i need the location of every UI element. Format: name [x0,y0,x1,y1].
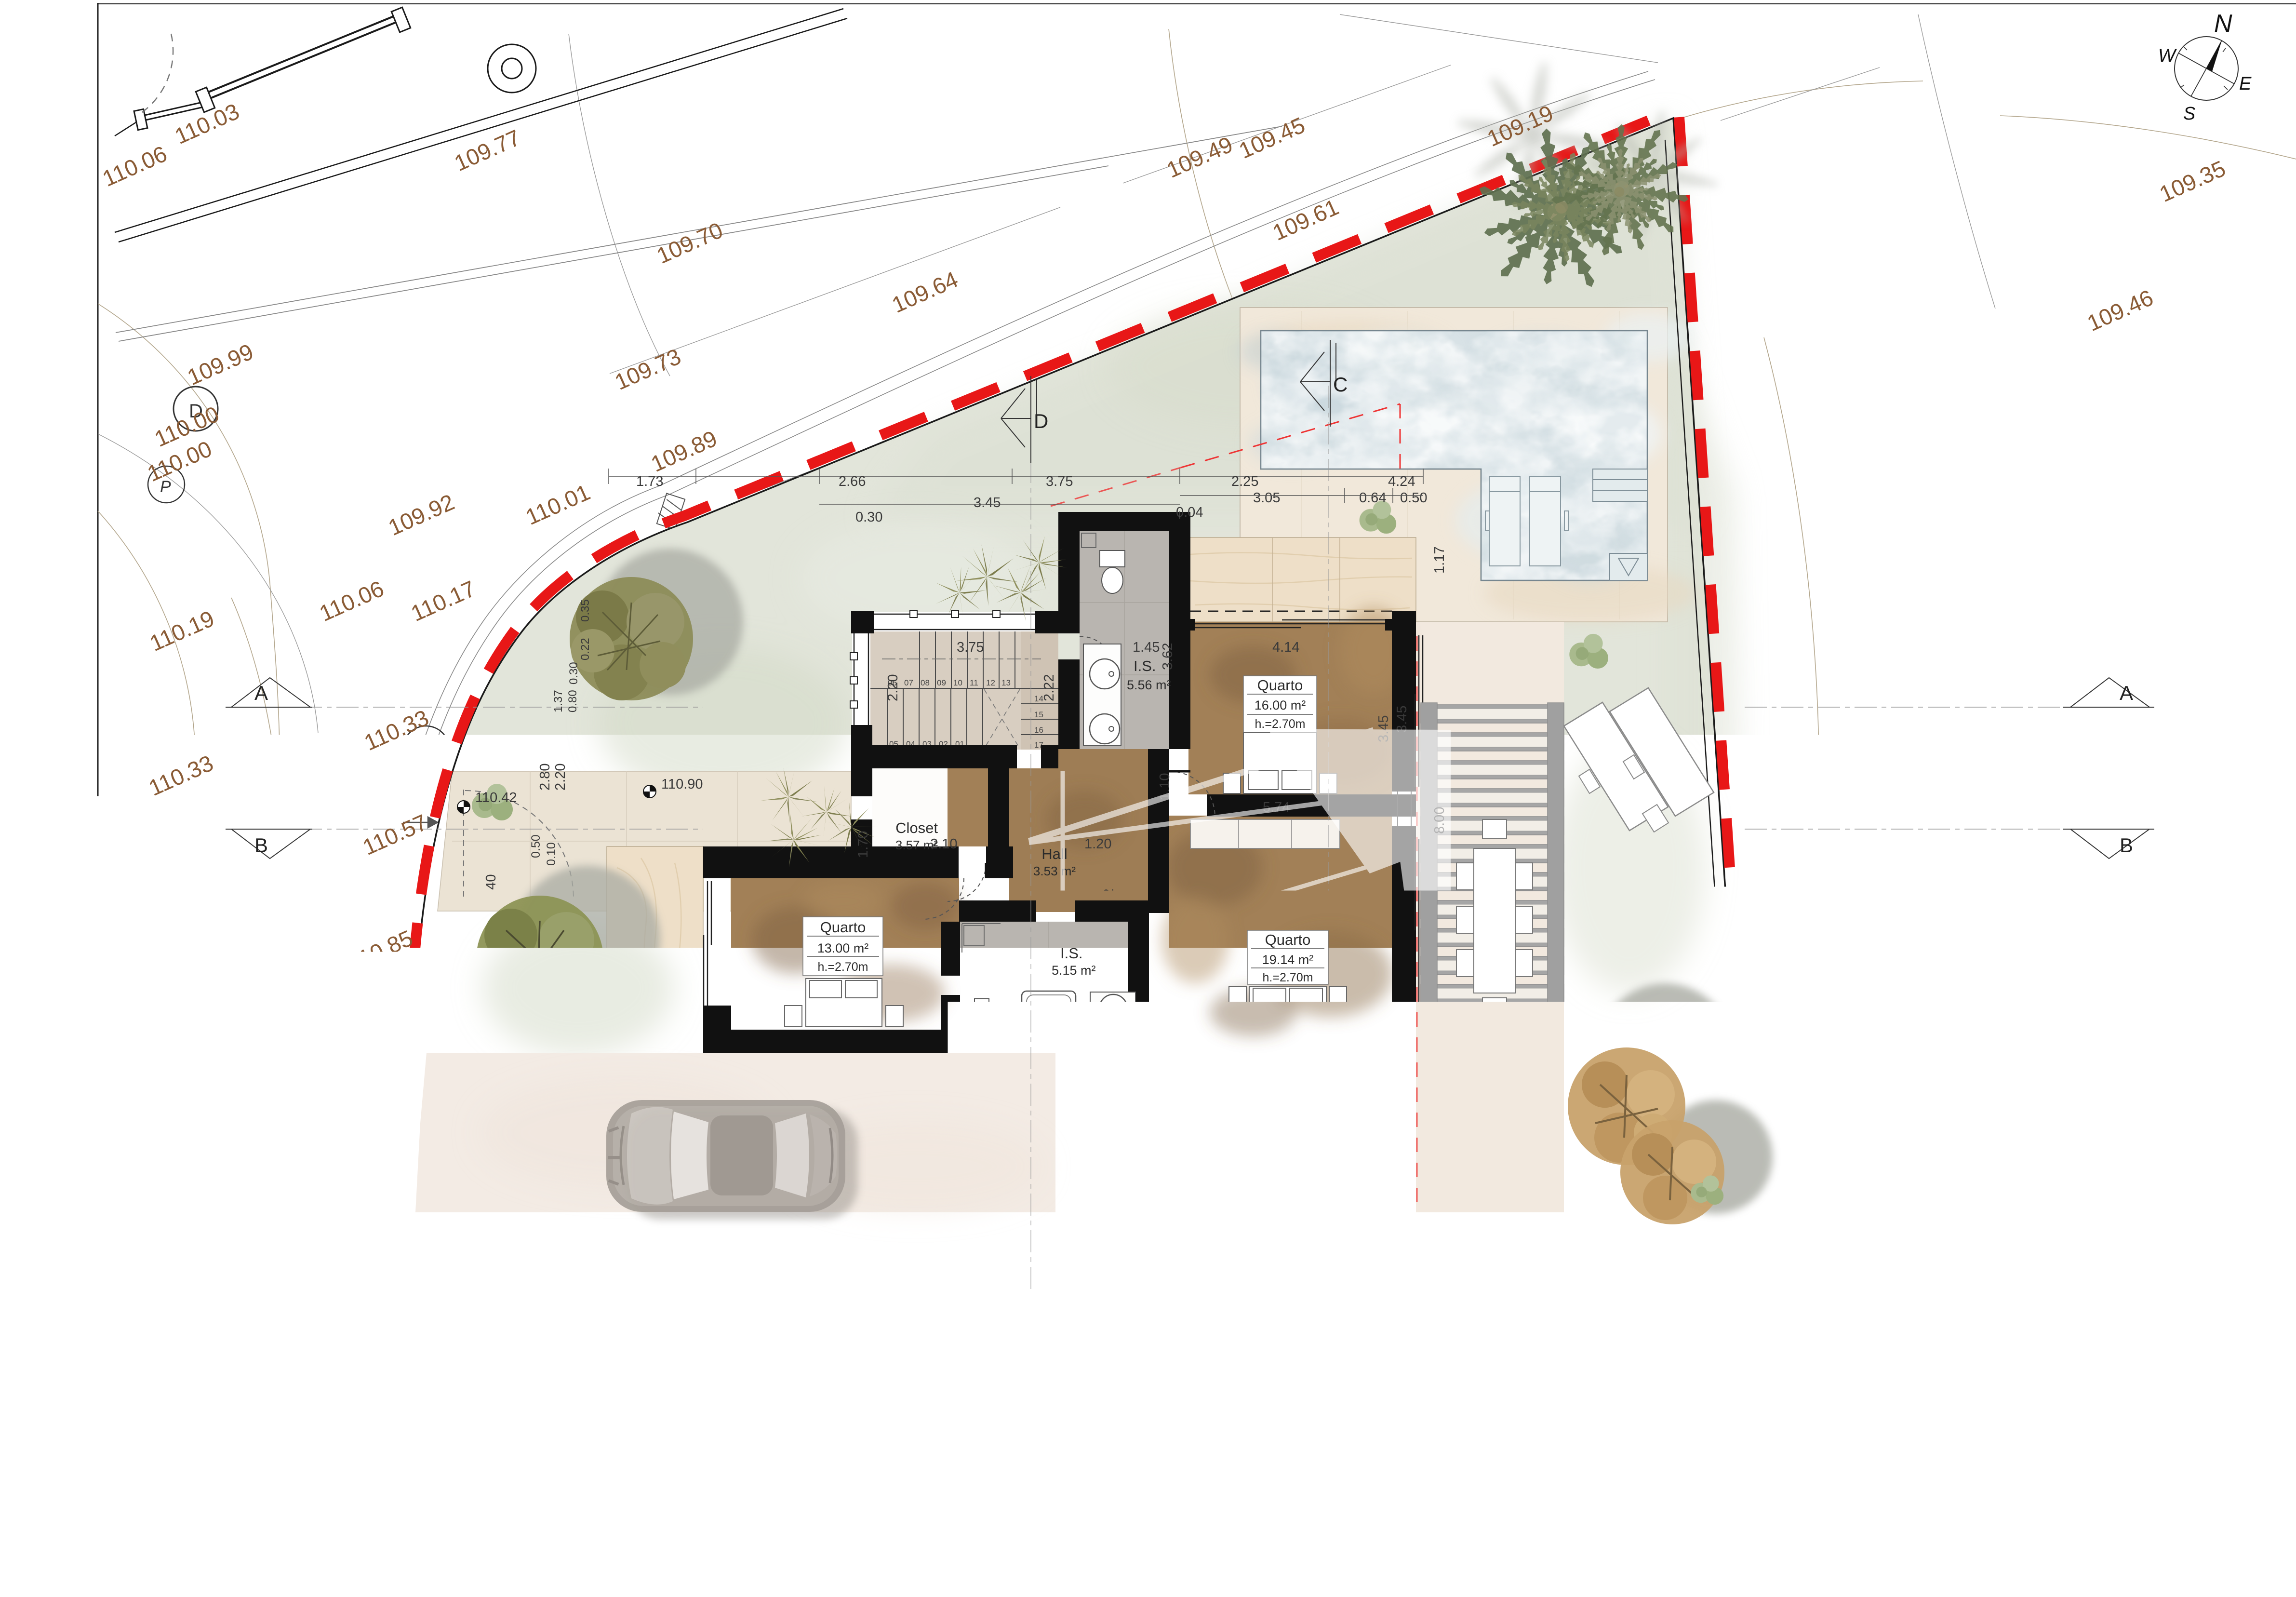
svg-text:113.92: 113.92 [1239,999,1281,1015]
svg-text:N.º de Pisos: N.º de Pisos [1097,1424,1187,1443]
svg-text:1.73: 1.73 [636,474,663,489]
svg-text:Closet: Closet [895,819,938,836]
svg-text:S: S [2183,104,2195,124]
svg-text:Volume de Construção: Volume de Construção [725,1525,862,1540]
svg-text:02: 02 [178,1444,188,1454]
svg-text:PLANTA: PLANTA [1589,1488,1721,1526]
svg-text:(máx. 280.00 m²): (máx. 280.00 m²) [994,1404,1067,1415]
svg-text:3.00: 3.00 [962,942,978,969]
svg-text:Piscina: Piscina [202,1459,246,1474]
svg-text:A: A [2120,682,2133,704]
svg-text:2.92: 2.92 [1101,889,1117,916]
svg-text:Quarto: Quarto [1265,931,1311,948]
svg-text:209.32 m²: 209.32 m² [463,1568,523,1583]
svg-text:C: C [1332,1293,1346,1315]
svg-text:ESCALA: ESCALA [2080,1431,2118,1442]
svg-text:4.24: 4.24 [1388,474,1415,489]
svg-text:0.50: 0.50 [1400,490,1427,506]
svg-text:versão: versão [2207,1557,2236,1567]
svg-text:(máx. 280.00 m²): (máx. 280.00 m²) [433,1372,506,1382]
svg-text:03: 03 [178,1463,188,1474]
svg-text:109.46: 109.46 [2083,284,2157,336]
svg-text:3.45: 3.45 [1394,706,1410,733]
svg-text:REQUERENTE: REQUERENTE [1589,1385,1655,1396]
svg-text:213.19: 213.19 [1145,1365,1187,1380]
svg-text:Deck Cerâmico sobre betonilha: Deck Cerâmico sobre betonilha [202,1478,391,1493]
svg-text:5.54: 5.54 [819,1074,846,1089]
svg-text:109.92: 109.92 [385,489,458,540]
svg-text:A: A [254,682,268,704]
svg-text:Área de Implantação: Área de Implantação [725,1347,850,1362]
svg-text:1.93: 1.93 [1108,1074,1135,1089]
svg-text:PROCESSO: PROCESSO [2080,1339,2134,1350]
svg-text:110.01: 110.01 [522,479,594,530]
svg-text:16.00 m²: 16.00 m² [1255,698,1306,712]
svg-text:639.57 m³: 639.57 m³ [1126,1525,1187,1540]
svg-text:12: 12 [986,678,995,687]
svg-text:(Extensão): (Extensão) [790,1546,837,1557]
svg-text:Lote 11: Lote 11 [1738,1440,1795,1460]
svg-text:3.05: 3.05 [1253,490,1280,506]
svg-text:23.43: 23.43 [627,1460,661,1475]
svg-text:110.17: 110.17 [407,576,480,626]
svg-text:AV.448.2021: AV.448.2021 [2080,1352,2177,1372]
svg-text:15: 15 [1034,710,1043,719]
svg-text:Data: Data [2210,1337,2231,1347]
svg-text:4.14: 4.14 [1272,640,1299,655]
svg-text:Área do Lote: Área do Lote [725,1329,802,1344]
svg-text:ARQUITECTURA: ARQUITECTURA [1539,1362,1567,1564]
svg-text:Habitação - Piso 01: Habitação - Piso 01 [176,1349,294,1364]
svg-text:(máx. 280.00 m²): (máx. 280.00 m²) [433,1333,506,1344]
svg-text:2.66: 2.66 [839,474,866,489]
svg-text:13: 13 [1001,678,1011,687]
svg-text:permeab. - 100 %: permeab. - 100 % [533,1446,609,1456]
svg-text:02: 02 [1172,1480,1187,1495]
svg-text:3.75: 3.75 [1046,474,1073,489]
svg-text:5.56 m²: 5.56 m² [1127,678,1171,692]
svg-text:Número Total de Pisos: Número Total de Pisos [725,1480,861,1495]
svg-text:109.99: 109.99 [184,338,257,390]
svg-text:109.49: 109.49 [1163,131,1237,183]
svg-text:19.14 m²: 19.14 m² [1262,953,1314,967]
svg-text:3.00: 3.00 [1432,1120,1447,1147]
svg-text:formato: formato [2207,1455,2240,1466]
svg-text:3.75: 3.75 [957,640,984,655]
svg-text:91.37: 91.37 [627,1349,661,1364]
svg-text:arquitectura: arquitectura [2121,1394,2218,1414]
svg-text:Implantação garagem: Implantação garagem [176,1387,307,1402]
svg-text:1/100: 1/100 [2120,1429,2182,1457]
svg-text:0.10: 0.10 [545,991,558,1014]
svg-text:Troviscal: Troviscal [1606,1440,1675,1460]
svg-text:1.73: 1.73 [672,1074,699,1089]
svg-text:0.30: 0.30 [855,510,882,525]
svg-text:134.08 m²: 134.08 m² [463,1549,523,1564]
svg-text:(máx. 305.00 m²): (máx. 305.00 m²) [994,1369,1067,1379]
svg-text:Piso 1: Piso 1 [1611,1534,1670,1558]
svg-text:AUTORIA: AUTORIA [1589,1339,1631,1350]
svg-text:16: 16 [1034,725,1043,735]
svg-text:P. 02: P. 02 [2124,1490,2236,1546]
svg-text:73.82 m: 73.82 m [1138,1542,1187,1557]
svg-text:48.06: 48.06 [627,1479,661,1494]
svg-text:Quarto: Quarto [1257,677,1303,694]
svg-text:Área Permeável: Área Permeável [176,1549,273,1564]
svg-text:02: 02 [1172,1445,1187,1460]
svg-text:10: 10 [953,678,962,687]
svg-text:194.14: 194.14 [1145,1400,1187,1415]
svg-text:D: D [1034,1293,1048,1315]
svg-text:1.17: 1.17 [1432,547,1447,574]
svg-text:Quarto: Quarto [820,919,866,936]
svg-text:2.80: 2.80 [537,764,553,791]
svg-text:I.S.: I.S. [1134,658,1156,674]
svg-text:102.77: 102.77 [620,1329,661,1344]
svg-text:1.40: 1.40 [483,874,499,901]
svg-text:109.89: 109.89 [647,425,721,477]
svg-text:(máx. 25.00 m²): (máx. 25.00 m²) [433,1391,501,1402]
svg-text:0.10: 0.10 [545,842,558,866]
svg-text:109.73: 109.73 [611,343,685,395]
svg-text:3.60: 3.60 [630,936,644,959]
svg-text:60.96%: 60.96% [602,1568,648,1583]
svg-text:07: 07 [904,678,913,687]
svg-text:13.00 m²: 13.00 m² [817,941,869,955]
svg-text:0.64: 0.64 [1359,490,1386,506]
svg-text:01: 01 [178,1425,188,1436]
svg-text:Habitação - Total: Habitação - Total [176,1368,277,1383]
svg-text:2.40: 2.40 [645,936,658,959]
svg-text:OA.13718: OA.13718 [1774,1353,1839,1369]
svg-text:Área Bruta de Construção: Área Bruta de Construção [725,1365,881,1380]
svg-text:32.01: 32.01 [627,1422,661,1437]
svg-text:D: D [384,1097,398,1118]
svg-text:19.05: 19.05 [627,1387,661,1402]
svg-text:00: 00 [1172,1462,1187,1477]
svg-text:permeab. - 0 %: permeab. - 0 % [533,1465,599,1476]
svg-text:2.20: 2.20 [553,764,568,791]
svg-text:(máx. 00 Pisos): (máx. 00 Pisos) [994,1466,1061,1476]
svg-text:Calçada Portuguesa sobre terre: Calçada Portuguesa sobre terreno compact… [202,1422,486,1437]
svg-text:109.77: 109.77 [451,124,524,176]
svg-text:194.14: 194.14 [620,1368,661,1383]
svg-text:110.06: 110.06 [316,576,388,626]
svg-text:B: B [254,834,268,857]
svg-text:111.02: 111.02 [99,1126,170,1176]
svg-text:111.50: 111.50 [339,1208,410,1258]
svg-text:3.05: 3.05 [1239,1074,1266,1089]
svg-text:0.30: 0.30 [567,662,580,684]
svg-text:Abaixo da Cota de Soleira: Abaixo da Cota de Soleira [725,1462,882,1477]
svg-text:3.45: 3.45 [974,495,1001,510]
svg-text:RUBRICA: RUBRICA [1938,1339,1982,1350]
svg-text:4.11: 4.11 [828,1011,854,1026]
svg-text:0.35: 0.35 [579,599,592,622]
svg-text:A3: A3 [2242,1449,2266,1470]
svg-text:permeab. - 0 %: permeab. - 0 % [533,1484,599,1495]
svg-text:Superficie de Pavimentos: Superficie de Pavimentos [725,1400,879,1415]
svg-text:110.74: 110.74 [245,985,317,1036]
svg-text:FOLHA: FOLHA [2080,1476,2112,1486]
svg-text:Arq. António Varela: Arq. António Varela [1609,1350,1758,1369]
svg-text:(máx. 02 Pisos): (máx. 02 Pisos) [994,1449,1061,1459]
svg-text:109.61: 109.61 [1269,194,1343,245]
svg-text:B: B [2120,834,2133,857]
svg-text:Cabanas: Cabanas [1880,1441,1949,1461]
svg-text:343.40: 343.40 [1145,1329,1187,1344]
svg-text:Habitação - Piso 00: Habitação - Piso 00 [176,1329,294,1344]
svg-text:1.70: 1.70 [855,831,871,858]
svg-text:Área Útil de Construção: Área Útil de Construção [725,1382,868,1397]
svg-text:110.33: 110.33 [145,750,217,801]
svg-text:C: C [1333,373,1348,396]
svg-text:DVP: DVP [1609,1396,1645,1415]
svg-text:permeab. - 50%: permeab. - 50% [533,1426,601,1436]
svg-text:109.69: 109.69 [2169,1153,2243,1205]
svg-text:LOCAL: LOCAL [1589,1429,1620,1440]
svg-text:11: 11 [970,678,978,687]
svg-text:h.=2.70m: h.=2.70m [1255,717,1306,731]
svg-text:E: E [2239,74,2252,94]
svg-text:2.10: 2.10 [930,836,957,852]
svg-text:1.20: 1.20 [1084,836,1111,852]
svg-text:Antonio Varela: Antonio Varela [1323,1484,1456,1504]
svg-text:D: D [1034,410,1048,432]
svg-text:(m²): (m²) [1142,1311,1166,1326]
svg-text:(máx. 02 Pisos): (máx. 02 Pisos) [994,1484,1061,1494]
svg-text:2.25: 2.25 [1231,474,1258,489]
svg-text:2.22: 2.22 [1041,674,1057,701]
svg-text:2.20: 2.20 [885,674,901,701]
svg-text:01: 01 [2240,1547,2265,1572]
svg-text:N: N [2214,10,2232,38]
svg-text:110.90: 110.90 [661,777,703,792]
svg-text:0.80: 0.80 [994,1074,1021,1089]
svg-text:Área Impermeável: Área Impermeável [176,1568,286,1583]
svg-text:0.80 m: 0.80 m [1145,1559,1187,1574]
svg-text:04: 04 [178,1483,188,1493]
svg-text:102.77: 102.77 [1145,1347,1187,1362]
svg-text:Muros: Muros [725,1559,763,1574]
svg-text:(máx. 6.50 m ): (máx. 6.50 m ) [994,1502,1056,1512]
svg-text:3.60: 3.60 [1394,925,1410,952]
svg-text:1.57: 1.57 [1369,1074,1396,1089]
svg-text:109.64: 109.64 [888,266,962,318]
svg-text:W: W [2158,46,2177,66]
svg-text:152.05: 152.05 [1145,1382,1187,1397]
svg-text:0.50: 0.50 [529,998,543,1022]
svg-text:1.45: 1.45 [1133,640,1160,655]
svg-text:3.62: 3.62 [1160,643,1175,670]
svg-text:12.89: 12.89 [1045,1092,1080,1107]
svg-text:1.37: 1.37 [552,690,565,712]
svg-text:ANTÓNIO VARELA: ANTÓNIO VARELA [964,966,1308,997]
svg-text:PALMELA: PALMELA [1974,1441,2052,1461]
svg-text:P: P [418,742,430,762]
svg-text:0.80: 0.80 [566,690,579,712]
svg-text:Acima da Cota de Soleira: Acima da Cota de Soleira [725,1445,879,1460]
svg-text:110.06: 110.06 [99,141,171,191]
svg-text:0.22: 0.22 [579,638,592,660]
svg-text:110.19: 110.19 [146,605,218,656]
svg-text:109.45: 109.45 [1235,112,1309,163]
svg-text:Relva: Relva [202,1440,237,1455]
svg-text:39.04%: 39.04% [602,1549,648,1564]
svg-text:(máx. 280.00 m²): (máx. 280.00 m²) [994,1351,1067,1362]
svg-text:Cércea: Cércea [725,1498,769,1513]
svg-text:arquitecto: arquitecto [1027,1004,1187,1028]
svg-text:11.2021: 11.2021 [2209,1351,2270,1371]
svg-text:110.42: 110.42 [475,790,517,805]
svg-text:110.90: 110.90 [455,1042,497,1057]
svg-text:h.=2.70m: h.=2.70m [818,960,868,974]
svg-text:09: 09 [937,678,946,687]
svg-text:0.50: 0.50 [529,834,543,858]
svg-text:118.08: 118.08 [621,1441,661,1456]
svg-text:(Altura): (Altura) [790,1563,822,1574]
svg-text:(m²): (m²) [607,1310,631,1325]
svg-text:Muros: Muros [725,1542,763,1557]
svg-text:3.53 m²: 3.53 m² [1033,864,1076,878]
svg-text:109.70: 109.70 [653,217,727,268]
svg-text:6.50 m: 6.50 m [1145,1498,1187,1513]
svg-text:109.35: 109.35 [2156,155,2229,207]
svg-text:08: 08 [921,678,930,687]
